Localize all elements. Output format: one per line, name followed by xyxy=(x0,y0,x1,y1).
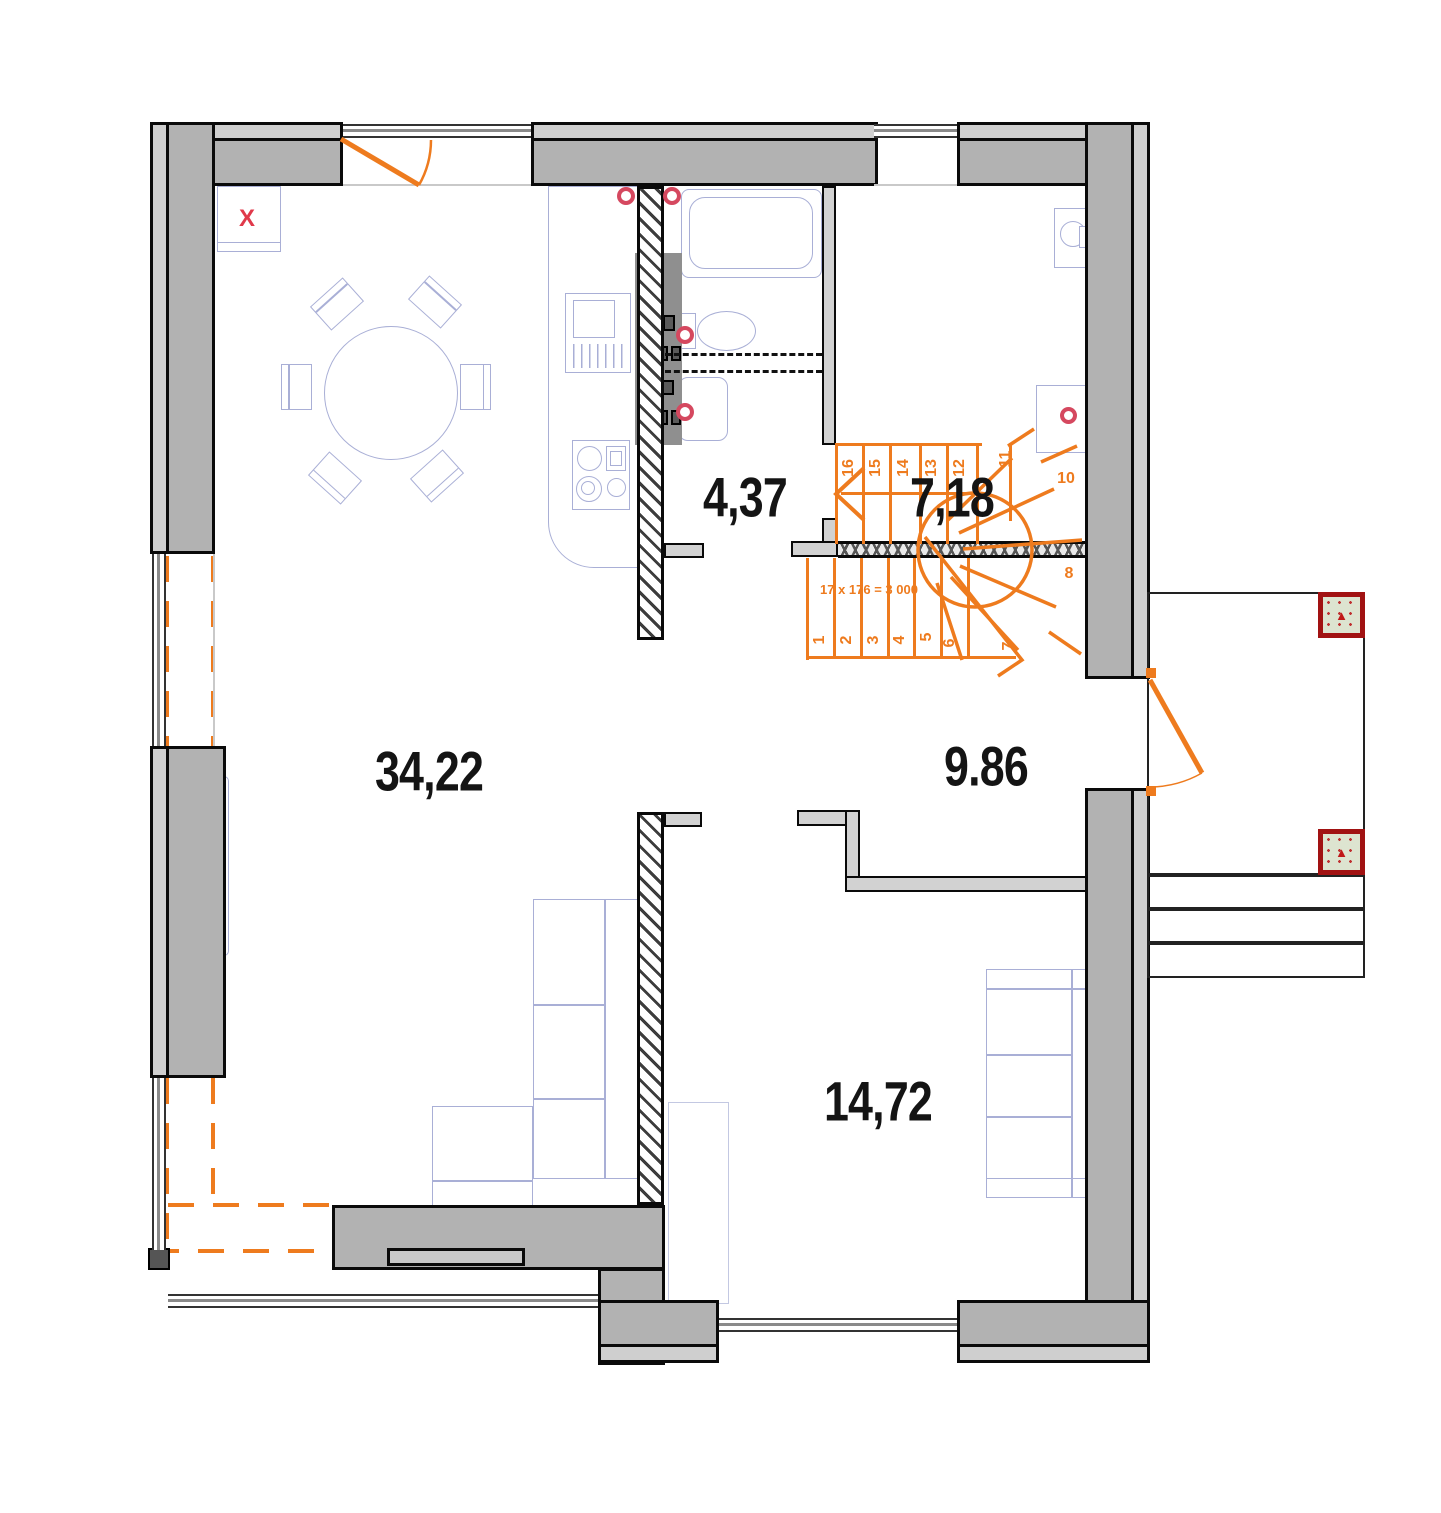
curves-overlay xyxy=(0,0,1441,1513)
winder-tick xyxy=(1041,446,1077,462)
balcony-door-leaf xyxy=(341,139,419,185)
floor-plan: X xyxy=(0,0,1441,1513)
winder-tick xyxy=(1008,429,1034,446)
entry-door-leaf xyxy=(1150,680,1202,773)
room-area-bedroom: 14,72 xyxy=(824,1069,932,1134)
room-area-living: 34,22 xyxy=(375,739,483,804)
room-area-hall: 9.86 xyxy=(944,734,1028,799)
stair-arrow-head xyxy=(836,468,864,520)
balcony-door-swing-arc xyxy=(419,140,431,185)
room-area-wc: 4,37 xyxy=(703,465,787,530)
room-area-stair-hall: 7,18 xyxy=(910,465,994,530)
entry-door-swing-arc xyxy=(1150,773,1202,787)
winder-tread xyxy=(937,583,962,660)
winder-tread xyxy=(963,540,1082,549)
winder-tick xyxy=(1049,632,1081,654)
